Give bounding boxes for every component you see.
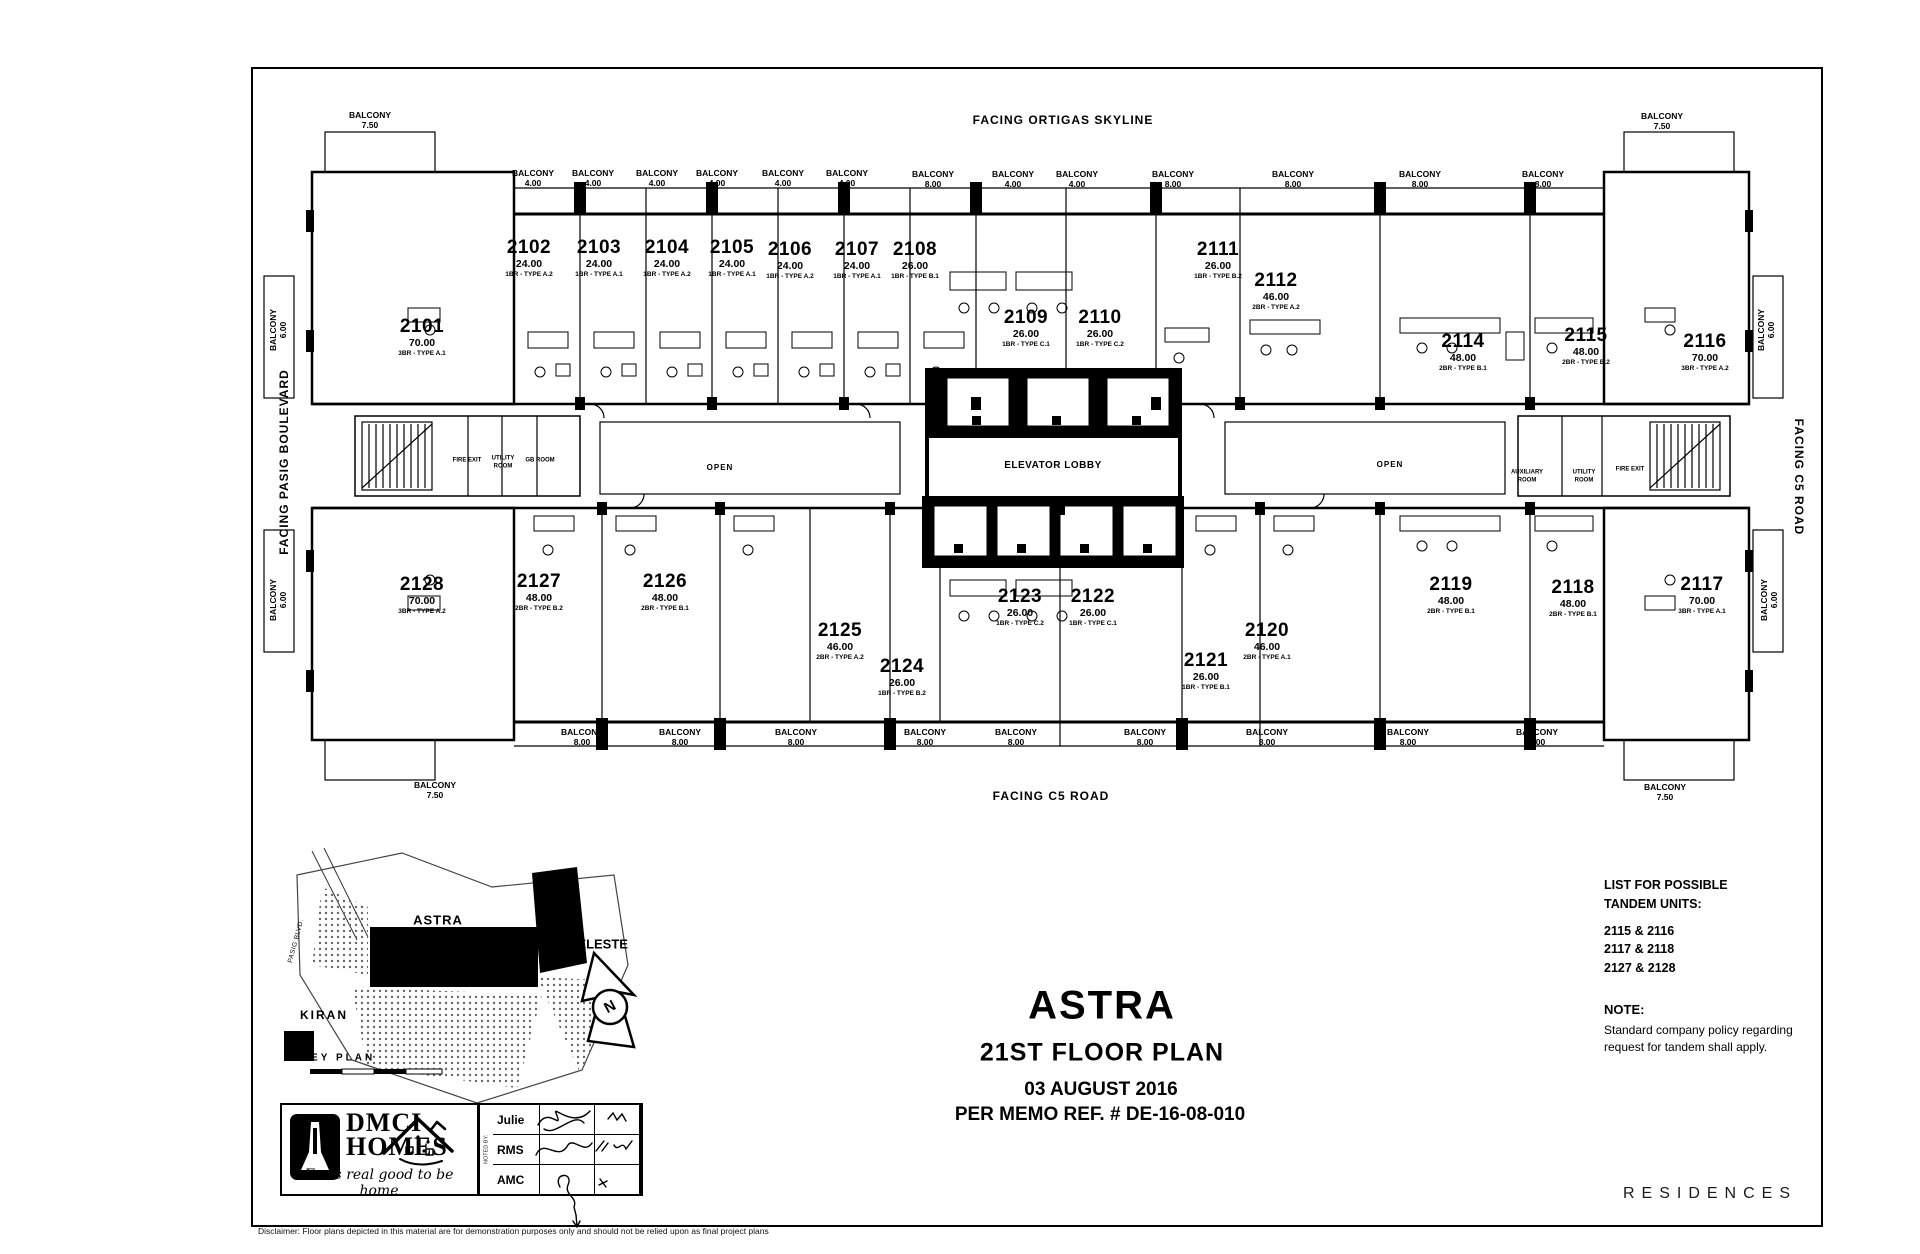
open-area-label: OPEN (707, 463, 734, 473)
unit-type: 1BR - TYPE C.2 (996, 621, 1044, 628)
project-title: ASTRA (1028, 984, 1176, 1029)
balcony-value: 8.00 (1246, 738, 1288, 748)
unit-area: 26.00 (891, 261, 939, 272)
unit-number: 2119 (1427, 575, 1475, 594)
spacer (1604, 914, 1728, 922)
balcony-label: BALCONY8.00 (995, 728, 1037, 748)
tandem-list: LIST FOR POSSIBLE TANDEM UNITS: 2115 & 2… (1604, 876, 1728, 978)
balcony-label: BALCONY8.00 (1387, 728, 1429, 748)
signature-cell (540, 1165, 595, 1194)
balcony-label: BALCONY8.00 (904, 728, 946, 748)
keyplan-title: KEY PLAN (301, 1053, 375, 1064)
unit-number: 2112 (1252, 271, 1299, 290)
balcony-value: 8.00 (995, 738, 1037, 748)
unit-area: 70.00 (1681, 353, 1728, 364)
fire-exit-label: FIRE EXIT (1615, 466, 1645, 474)
unit-number: 2114 (1439, 332, 1487, 351)
unit-2114: 211448.002BR - TYPE B.1 (1439, 332, 1487, 372)
balcony-label: BALCONY6.00 (1757, 309, 1777, 351)
unit-area: 48.00 (1549, 599, 1597, 610)
balcony-label: BALCONY8.00 (1272, 170, 1314, 190)
balcony-value: 8.00 (1124, 738, 1166, 748)
unit-type: 1BR - TYPE A.1 (575, 272, 622, 279)
unit-area: 26.00 (1194, 261, 1242, 272)
unit-2111: 211126.001BR - TYPE B.2 (1194, 240, 1242, 280)
unit-type: 2BR - TYPE B.2 (515, 606, 563, 613)
balcony-value: 4.00 (636, 179, 678, 189)
unit-2126: 212648.002BR - TYPE B.1 (641, 572, 689, 612)
note-line: Standard company policy regarding (1604, 1022, 1804, 1039)
unit-area: 46.00 (816, 642, 863, 653)
balcony-value: 7.50 (414, 791, 456, 801)
balcony-value: 6.00 (279, 309, 289, 351)
unit-area: 24.00 (708, 259, 755, 270)
signoff-table: NOTED BY: Julie RMS AMC (477, 1103, 641, 1196)
unit-type: 2BR - TYPE B.1 (641, 606, 689, 613)
open-area-label: OPEN (1377, 460, 1404, 470)
unit-area: 26.00 (1182, 672, 1230, 683)
unit-number: 2101 (398, 317, 445, 336)
unit-2104: 210424.001BR - TYPE A.2 (643, 238, 690, 278)
balcony-value: 8.00 (912, 180, 954, 190)
unit-2106: 210624.001BR - TYPE A.2 (766, 240, 813, 280)
unit-type: 1BR - TYPE B.1 (891, 274, 939, 281)
balcony-label: BALCONY8.00 (1399, 170, 1441, 190)
tandem-pair: 2127 & 2128 (1604, 959, 1728, 978)
unit-number: 2115 (1562, 326, 1610, 345)
balcony-value: 8.00 (1522, 180, 1564, 190)
unit-type: 1BR - TYPE B.2 (878, 691, 926, 698)
balcony-value: 4.00 (572, 179, 614, 189)
unit-number: 2123 (996, 587, 1044, 606)
balcony-value: 7.50 (349, 121, 391, 131)
unit-type: 2BR - TYPE A.1 (1243, 655, 1290, 662)
floor-plan-title: 21ST FLOOR PLAN (980, 1039, 1224, 1068)
balcony-value: 4.00 (512, 179, 554, 189)
unit-number: 2105 (708, 238, 755, 257)
facing-left-label: FACING PASIG BOULEVARD (277, 369, 291, 555)
unit-2123: 212326.001BR - TYPE C.2 (996, 587, 1044, 627)
unit-area: 48.00 (1439, 353, 1487, 364)
unit-area: 26.00 (878, 678, 926, 689)
balcony-label: BALCONY8.00 (775, 728, 817, 748)
unit-2116: 211670.003BR - TYPE A.2 (1681, 332, 1728, 372)
balcony-label: BALCONY4.00 (762, 169, 804, 189)
utility-room-label: UTILITY ROOM (486, 456, 520, 471)
balcony-value: 8.00 (1516, 738, 1558, 748)
unit-type: 3BR - TYPE A.2 (1681, 366, 1728, 373)
unit-2103: 210324.001BR - TYPE A.1 (575, 238, 622, 278)
unit-area: 24.00 (575, 259, 622, 270)
unit-type: 1BR - TYPE A.1 (833, 274, 880, 281)
balcony-value: 7.50 (1641, 122, 1683, 132)
unit-type: 1BR - TYPE A.2 (643, 272, 690, 279)
unit-type: 3BR - TYPE A.1 (398, 351, 445, 358)
unit-number: 2128 (398, 575, 445, 594)
scanned-floor-plan-page: FACING ORTIGAS SKYLINE FACING PASIG BOUL… (0, 0, 1920, 1254)
date-cell (595, 1165, 639, 1194)
balcony-value: 4.00 (826, 179, 868, 189)
unit-type: 1BR - TYPE B.1 (1182, 685, 1230, 692)
balcony-label: BALCONY8.00 (659, 728, 701, 748)
unit-area: 48.00 (1562, 347, 1610, 358)
unit-2115: 211548.002BR - TYPE B.2 (1562, 326, 1610, 366)
utility-room-label: UTILITY ROOM (1567, 470, 1601, 485)
unit-number: 2121 (1182, 651, 1230, 670)
balcony-value: 4.00 (992, 180, 1034, 190)
unit-area: 24.00 (643, 259, 690, 270)
residences-logotype: RESIDENCES (1623, 1185, 1797, 1203)
unit-2118: 211848.002BR - TYPE B.1 (1549, 578, 1597, 618)
balcony-label: BALCONY8.00 (1152, 170, 1194, 190)
unit-2108: 210826.001BR - TYPE B.1 (891, 240, 939, 280)
key-plan-drawing (282, 845, 642, 1110)
unit-area: 48.00 (1427, 596, 1475, 607)
unit-number: 2103 (575, 238, 622, 257)
balcony-value: 7.50 (1644, 793, 1686, 803)
auxiliary-room-label: AUXILIARY ROOM (1506, 470, 1548, 485)
unit-type: 2BR - TYPE A.2 (816, 655, 863, 662)
disclaimer-text: Disclaimer: Floor plans depicted in this… (258, 1226, 769, 1236)
unit-number: 2117 (1678, 575, 1725, 594)
unit-number: 2104 (643, 238, 690, 257)
date-cell (595, 1105, 639, 1134)
signoff-name: RMS (493, 1135, 540, 1164)
keyplan-astra-label: ASTRA (413, 913, 463, 928)
unit-area: 24.00 (833, 261, 880, 272)
unit-2117: 211770.003BR - TYPE A.1 (1678, 575, 1725, 615)
unit-2105: 210524.001BR - TYPE A.1 (708, 238, 755, 278)
balcony-value: 8.00 (561, 738, 603, 748)
unit-type: 2BR - TYPE B.1 (1427, 609, 1475, 616)
unit-number: 2106 (766, 240, 813, 259)
unit-number: 2124 (878, 657, 926, 676)
balcony-value: 8.00 (1272, 180, 1314, 190)
balcony-value: 8.00 (1152, 180, 1194, 190)
unit-number: 2111 (1194, 240, 1242, 259)
unit-type: 1BR - TYPE C.1 (1002, 342, 1050, 349)
tandem-pair: 2117 & 2118 (1604, 940, 1728, 959)
house-sketch-icon (378, 1109, 470, 1169)
balcony-value: 4.00 (696, 179, 738, 189)
unit-number: 2107 (833, 240, 880, 259)
balcony-label: BALCONY8.00 (1246, 728, 1288, 748)
balcony-label: BALCONY8.00 (1522, 170, 1564, 190)
balcony-label: BALCONY8.00 (561, 728, 603, 748)
unit-type: 2BR - TYPE B.2 (1562, 360, 1610, 367)
unit-type: 1BR - TYPE C.2 (1076, 342, 1124, 349)
unit-2110: 211026.001BR - TYPE C.2 (1076, 308, 1124, 348)
date-cell (595, 1135, 639, 1164)
unit-area: 70.00 (398, 338, 445, 349)
signoff-side-label: NOTED BY: (479, 1105, 493, 1194)
tandem-heading-2: TANDEM UNITS: (1604, 895, 1728, 914)
signature-cell (540, 1105, 595, 1134)
unit-number: 2122 (1069, 587, 1117, 606)
unit-number: 2120 (1243, 621, 1290, 640)
balcony-label: BALCONY4.00 (512, 169, 554, 189)
note-line: request for tandem shall apply. (1604, 1039, 1804, 1056)
unit-type: 1BR - TYPE C.1 (1069, 621, 1117, 628)
dmci-tagline: Feels real good to be home (286, 1167, 472, 1199)
unit-number: 2126 (641, 572, 689, 591)
unit-area: 26.00 (1076, 329, 1124, 340)
unit-2124: 212426.001BR - TYPE B.2 (878, 657, 926, 697)
signoff-row: Julie (493, 1105, 639, 1135)
balcony-label: BALCONY4.00 (992, 170, 1034, 190)
signature-cell (540, 1135, 595, 1164)
balcony-value: 8.00 (659, 738, 701, 748)
balcony-label: BALCONY7.50 (349, 111, 391, 131)
balcony-label: BALCONY8.00 (912, 170, 954, 190)
balcony-value: 6.00 (1767, 309, 1777, 351)
balcony-value: 4.00 (1056, 180, 1098, 190)
balcony-value: 6.00 (279, 579, 289, 621)
balcony-label: BALCONY7.50 (414, 781, 456, 801)
balcony-label: BALCONY7.50 (1644, 783, 1686, 803)
signoff-name: Julie (493, 1105, 540, 1134)
balcony-label: BALCONY8.00 (1124, 728, 1166, 748)
unit-type: 3BR - TYPE A.1 (1678, 609, 1725, 616)
balcony-label: BALCONY4.00 (696, 169, 738, 189)
floor-plan-drawing (250, 80, 1830, 820)
unit-2125: 212546.002BR - TYPE A.2 (816, 621, 863, 661)
unit-2128: 212870.003BR - TYPE A.2 (398, 575, 445, 615)
unit-area: 24.00 (766, 261, 813, 272)
unit-area: 26.00 (1069, 608, 1117, 619)
balcony-value: 4.00 (762, 179, 804, 189)
fire-exit-label: FIRE EXIT (452, 457, 482, 465)
unit-number: 2118 (1549, 578, 1597, 597)
elevator-lobby-label: ELEVATOR LOBBY (1004, 460, 1102, 473)
balcony-label: BALCONY6.00 (269, 309, 289, 351)
unit-2101: 210170.003BR - TYPE A.1 (398, 317, 445, 357)
unit-area: 24.00 (505, 259, 552, 270)
unit-2120: 212046.002BR - TYPE A.1 (1243, 621, 1290, 661)
unit-type: 2BR - TYPE B.1 (1549, 612, 1597, 619)
unit-type: 1BR - TYPE A.2 (766, 274, 813, 281)
note-block: NOTE: Standard company policy regarding … (1604, 1001, 1804, 1057)
facing-bottom-label: FACING C5 ROAD (993, 789, 1110, 803)
unit-number: 2127 (515, 572, 563, 591)
plan-date: 03 AUGUST 2016 (1024, 1079, 1177, 1101)
balcony-label: BALCONY6.00 (269, 579, 289, 621)
unit-2121: 212126.001BR - TYPE B.1 (1182, 651, 1230, 691)
signoff-row: AMC (493, 1165, 639, 1194)
tandem-heading-1: LIST FOR POSSIBLE (1604, 876, 1728, 895)
unit-area: 48.00 (641, 593, 689, 604)
balcony-label: BALCONY4.00 (1056, 170, 1098, 190)
balcony-label: BALCONY8.00 (1516, 728, 1558, 748)
unit-type: 2BR - TYPE A.2 (1252, 305, 1299, 312)
unit-area: 46.00 (1243, 642, 1290, 653)
unit-area: 70.00 (398, 596, 445, 607)
balcony-value: 6.00 (1770, 579, 1780, 621)
unit-2127: 212748.002BR - TYPE B.2 (515, 572, 563, 612)
unit-type: 1BR - TYPE A.1 (708, 272, 755, 279)
unit-number: 2110 (1076, 308, 1124, 327)
unit-2119: 211948.002BR - TYPE B.1 (1427, 575, 1475, 615)
facing-right-label: FACING C5 ROAD (1792, 419, 1806, 536)
balcony-label: BALCONY7.50 (1641, 112, 1683, 132)
unit-type: 2BR - TYPE B.1 (1439, 366, 1487, 373)
unit-2122: 212226.001BR - TYPE C.1 (1069, 587, 1117, 627)
keyplan-celeste-label: CELESTE (568, 937, 628, 952)
balcony-value: 8.00 (1399, 180, 1441, 190)
signoff-name: AMC (493, 1165, 540, 1194)
unit-type: 1BR - TYPE B.2 (1194, 274, 1242, 281)
unit-2109: 210926.001BR - TYPE C.1 (1002, 308, 1050, 348)
gb-room-label: GB ROOM (525, 457, 555, 465)
signoff-row: RMS (493, 1135, 639, 1165)
unit-2107: 210724.001BR - TYPE A.1 (833, 240, 880, 280)
unit-area: 70.00 (1678, 596, 1725, 607)
balcony-value: 8.00 (904, 738, 946, 748)
unit-number: 2109 (1002, 308, 1050, 327)
unit-number: 2116 (1681, 332, 1728, 351)
unit-area: 46.00 (1252, 292, 1299, 303)
unit-number: 2102 (505, 238, 552, 257)
facing-top-label: FACING ORTIGAS SKYLINE (973, 113, 1154, 127)
balcony-label: BALCONY4.00 (826, 169, 868, 189)
memo-reference: PER MEMO REF. # DE-16-08-010 (955, 1104, 1245, 1126)
balcony-label: BALCONY4.00 (636, 169, 678, 189)
unit-area: 26.00 (1002, 329, 1050, 340)
tandem-pair: 2115 & 2116 (1604, 922, 1728, 941)
unit-number: 2108 (891, 240, 939, 259)
keyplan-kiran-label: KIRAN (300, 1008, 348, 1022)
unit-2102: 210224.001BR - TYPE A.2 (505, 238, 552, 278)
unit-area: 26.00 (996, 608, 1044, 619)
unit-type: 3BR - TYPE A.2 (398, 609, 445, 616)
unit-type: 1BR - TYPE A.2 (505, 272, 552, 279)
unit-2112: 211246.002BR - TYPE A.2 (1252, 271, 1299, 311)
unit-number: 2125 (816, 621, 863, 640)
balcony-value: 8.00 (1387, 738, 1429, 748)
signoff-rows: Julie RMS AMC (493, 1105, 639, 1194)
unit-area: 48.00 (515, 593, 563, 604)
balcony-label: BALCONY6.00 (1760, 579, 1780, 621)
note-heading: NOTE: (1604, 1001, 1804, 1020)
balcony-label: BALCONY4.00 (572, 169, 614, 189)
balcony-value: 8.00 (775, 738, 817, 748)
